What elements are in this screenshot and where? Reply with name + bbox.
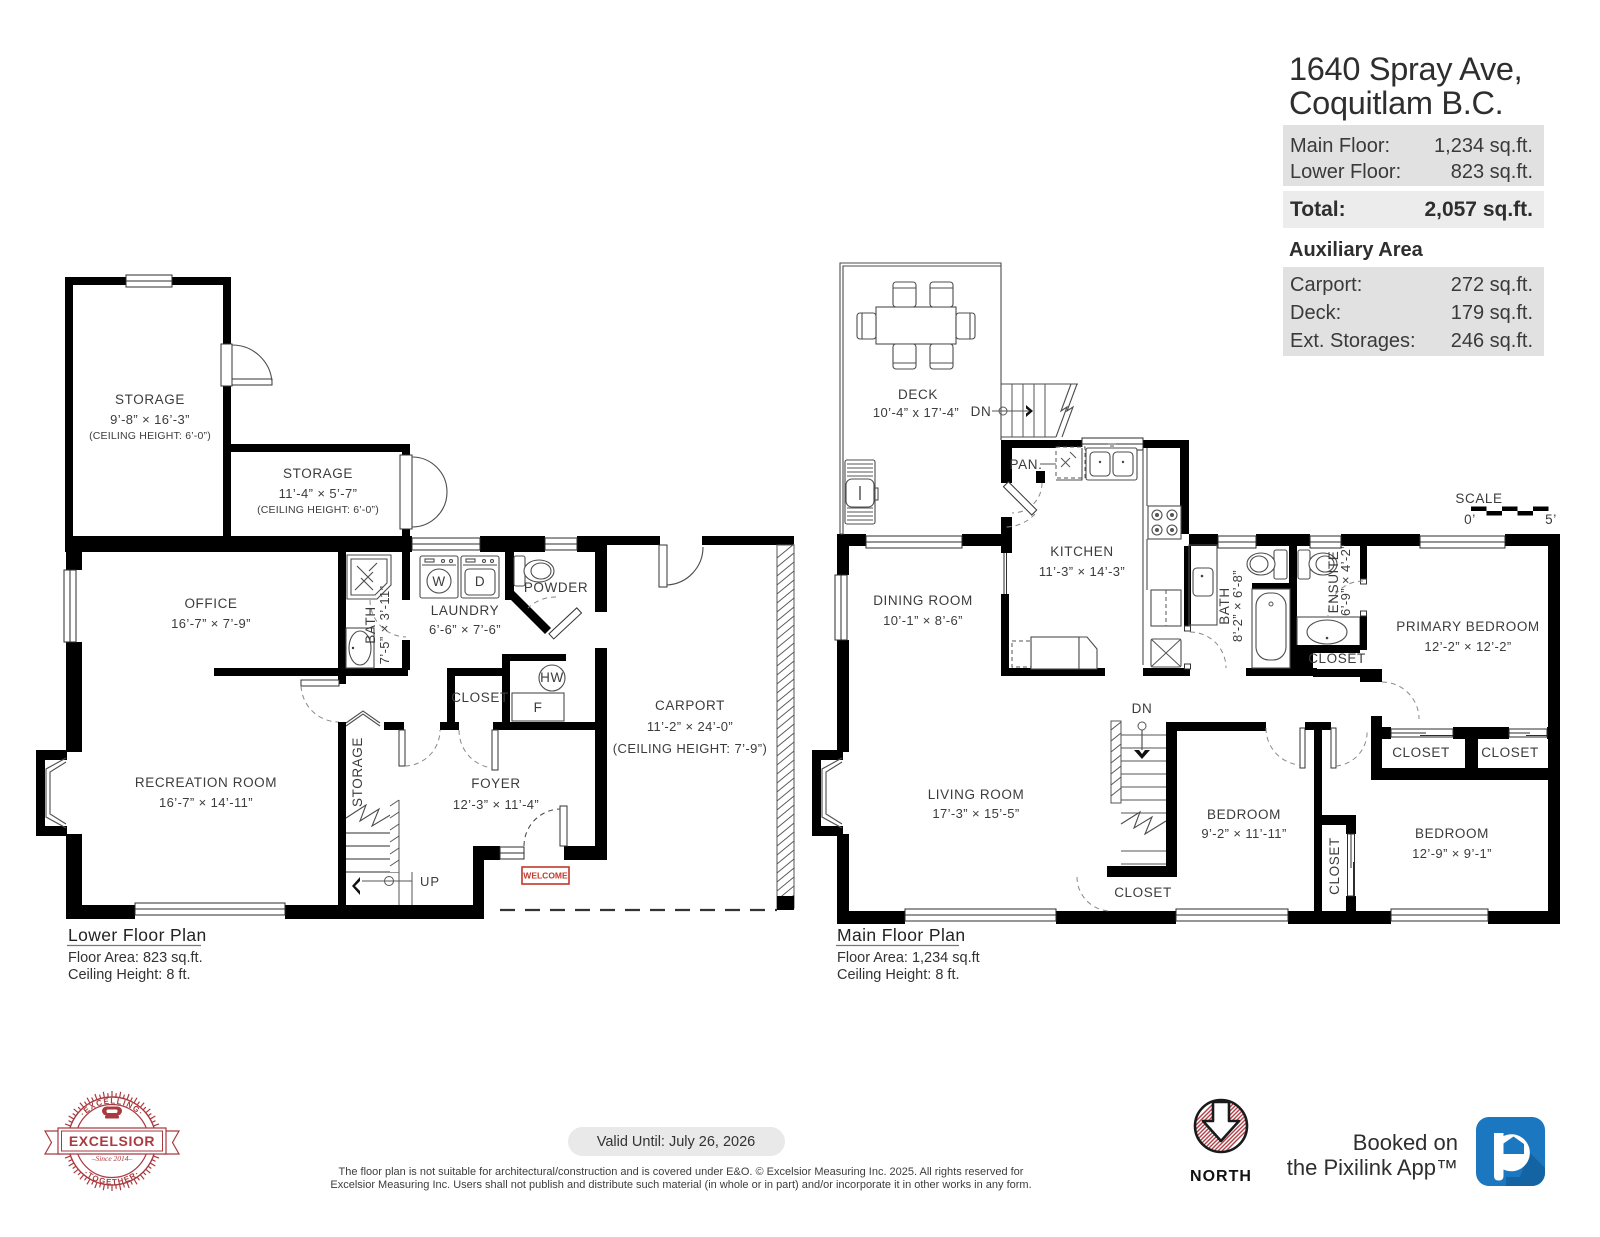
svg-text:UP: UP (420, 874, 440, 889)
svg-text:Ceiling Height: 8 ft.: Ceiling Height: 8 ft. (68, 967, 191, 983)
svg-text:W: W (432, 574, 445, 589)
svg-text:Main Floor:: Main Floor: (1290, 135, 1390, 157)
svg-text:2,057 sq.ft.: 2,057 sq.ft. (1424, 198, 1533, 221)
svg-text:Main Floor Plan: Main Floor Plan (837, 925, 966, 945)
svg-text:LIVING ROOM: LIVING ROOM (928, 787, 1025, 802)
svg-text:5’: 5’ (1545, 512, 1557, 527)
svg-text:Floor Area: 1,234 sq.ft: Floor Area: 1,234 sq.ft (837, 950, 980, 966)
svg-text:LAUNDRY: LAUNDRY (431, 603, 499, 618)
svg-text:Floor Area: 823 sq.ft.: Floor Area: 823 sq.ft. (68, 950, 203, 966)
svg-text:–Since 2014–: –Since 2014– (91, 1154, 133, 1163)
svg-text:(CEILING HEIGHT: 6’-0”): (CEILING HEIGHT: 6’-0”) (89, 430, 211, 442)
svg-text:16’-7” × 14’-11”: 16’-7” × 14’-11” (159, 795, 253, 810)
svg-text:1,234 sq.ft.: 1,234 sq.ft. (1434, 135, 1533, 157)
svg-text:DINING ROOM: DINING ROOM (873, 593, 973, 608)
svg-text:Ext. Storages:: Ext. Storages: (1290, 330, 1416, 352)
svg-text:1640 Spray Ave,: 1640 Spray Ave, (1289, 51, 1522, 87)
svg-text:10’-4” x 17’-4”: 10’-4” x 17’-4” (873, 405, 959, 420)
svg-text:11’-3” × 14’-3”: 11’-3” × 14’-3” (1039, 564, 1125, 579)
svg-text:Lower Floor:: Lower Floor: (1290, 161, 1401, 183)
svg-text:9’-8” × 16’-3”: 9’-8” × 16’-3” (110, 412, 190, 427)
svg-text:Carport:: Carport: (1290, 274, 1362, 296)
svg-text:CLOSET: CLOSET (451, 690, 509, 705)
svg-text:the Pixilink App™: the Pixilink App™ (1287, 1155, 1458, 1180)
svg-text:CLOSET: CLOSET (1481, 745, 1539, 760)
svg-text:CLOSET: CLOSET (1327, 837, 1342, 895)
svg-text:Total:: Total: (1290, 198, 1346, 221)
svg-text:(CEILING HEIGHT: 6’-0”): (CEILING HEIGHT: 6’-0”) (257, 504, 379, 516)
svg-text:Valid Until: July 26, 2026: Valid Until: July 26, 2026 (597, 1134, 756, 1150)
svg-text:8’-2” × 6’-8”: 8’-2” × 6’-8” (1230, 570, 1245, 642)
svg-text:STORAGE: STORAGE (350, 737, 365, 807)
svg-text:11’-2” × 24’-0”: 11’-2” × 24’-0” (647, 719, 733, 734)
svg-text:17’-3” × 15’-5”: 17’-3” × 15’-5” (932, 806, 1019, 821)
svg-text:16’-7” × 7’-9”: 16’-7” × 7’-9” (171, 616, 251, 631)
svg-text:STORAGE: STORAGE (283, 466, 353, 481)
svg-text:0’: 0’ (1464, 512, 1476, 527)
svg-text:BATH: BATH (363, 606, 378, 643)
svg-text:12’-2” × 12’-2”: 12’-2” × 12’-2” (1424, 639, 1511, 654)
svg-text:WELCOME: WELCOME (523, 871, 568, 881)
svg-text:FOYER: FOYER (471, 776, 521, 791)
svg-text:Ceiling Height: 8 ft.: Ceiling Height: 8 ft. (837, 967, 960, 983)
svg-text:DN: DN (971, 404, 992, 419)
svg-text:12’-9” × 9’-1”: 12’-9” × 9’-1” (1412, 846, 1492, 861)
svg-text:D: D (475, 574, 485, 589)
svg-text:CLOSET: CLOSET (1114, 885, 1172, 900)
svg-text:SCALE: SCALE (1455, 491, 1502, 506)
svg-text:823 sq.ft.: 823 sq.ft. (1451, 161, 1533, 183)
svg-text:PRIMARY BEDROOM: PRIMARY BEDROOM (1396, 619, 1540, 634)
svg-text:179 sq.ft.: 179 sq.ft. (1451, 302, 1533, 324)
svg-text:OFFICE: OFFICE (184, 596, 237, 611)
svg-text:BEDROOM: BEDROOM (1207, 807, 1281, 822)
svg-text:Auxiliary Area: Auxiliary Area (1289, 239, 1424, 261)
svg-text:7’-5” × 3’-11”: 7’-5” × 3’-11” (377, 586, 392, 665)
svg-text:CLOSET: CLOSET (1308, 651, 1366, 666)
svg-text:6’-6” × 7’-6”: 6’-6” × 7’-6” (429, 622, 501, 637)
svg-text:11’-4” × 5’-7”: 11’-4” × 5’-7” (279, 486, 358, 501)
svg-text:Lower Floor Plan: Lower Floor Plan (68, 925, 207, 945)
svg-text:PAN.: PAN. (1010, 457, 1043, 472)
svg-text:9’-2” × 11’-11”: 9’-2” × 11’-11” (1201, 826, 1286, 841)
svg-text:STORAGE: STORAGE (115, 392, 185, 407)
svg-text:NORTH: NORTH (1190, 1168, 1252, 1185)
svg-text:CARPORT: CARPORT (655, 698, 725, 713)
svg-text:EXCELSIOR: EXCELSIOR (69, 1133, 155, 1149)
svg-text:272 sq.ft.: 272 sq.ft. (1451, 274, 1533, 296)
svg-text:CLOSET: CLOSET (1392, 745, 1450, 760)
svg-text:6’-9” × 4’-2”: 6’-9” × 4’-2” (1338, 544, 1353, 616)
svg-text:HW: HW (540, 670, 564, 685)
svg-text:12’-3” × 11’-4”: 12’-3” × 11’-4” (453, 797, 539, 812)
svg-text:Excelsior Measuring Inc. Users: Excelsior Measuring Inc. Users shall not… (330, 1179, 1031, 1191)
svg-text:F: F (534, 700, 543, 715)
svg-text:RECREATION ROOM: RECREATION ROOM (135, 775, 277, 790)
svg-text:(CEILING HEIGHT: 7’-9”): (CEILING HEIGHT: 7’-9”) (613, 741, 767, 756)
svg-text:The floor plan is not suitable: The floor plan is not suitable for archi… (339, 1166, 1024, 1178)
svg-text:246 sq.ft.: 246 sq.ft. (1451, 330, 1533, 352)
svg-text:DECK: DECK (898, 387, 938, 402)
svg-text:DN: DN (1132, 701, 1153, 716)
svg-text:Coquitlam B.C.: Coquitlam B.C. (1289, 85, 1503, 121)
svg-text:KITCHEN: KITCHEN (1050, 544, 1113, 559)
svg-text:10’-1” × 8’-6”: 10’-1” × 8’-6” (883, 613, 963, 628)
svg-text:POWDER: POWDER (524, 580, 588, 595)
svg-text:BEDROOM: BEDROOM (1415, 826, 1489, 841)
svg-text:Deck:: Deck: (1290, 302, 1341, 324)
svg-text:Booked on: Booked on (1353, 1130, 1458, 1155)
